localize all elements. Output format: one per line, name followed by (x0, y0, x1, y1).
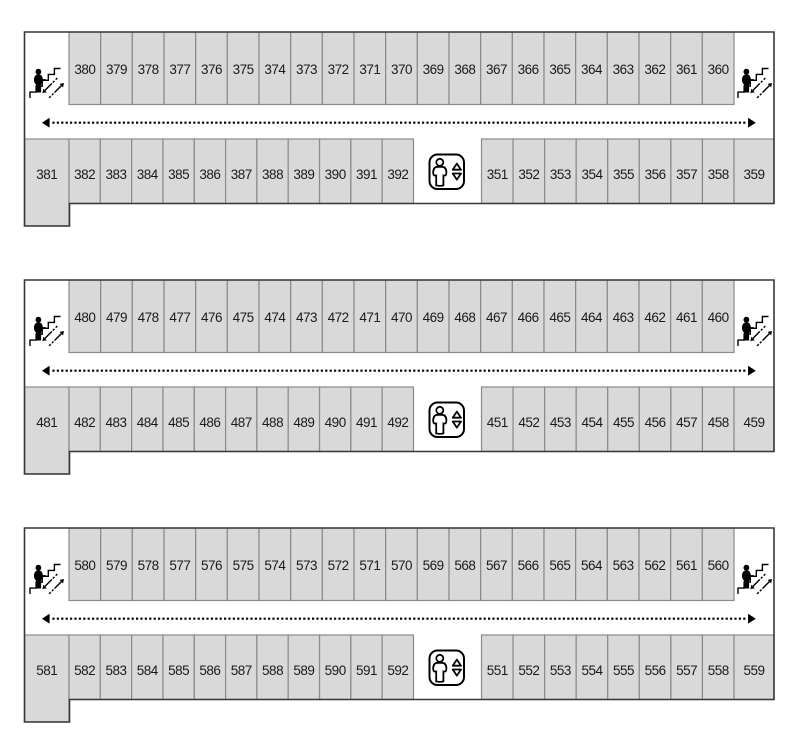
svg-text:379: 379 (106, 62, 127, 77)
svg-text:376: 376 (201, 62, 222, 77)
svg-text:359: 359 (743, 167, 764, 182)
svg-text:555: 555 (613, 663, 634, 678)
svg-text:463: 463 (613, 310, 634, 325)
svg-text:575: 575 (233, 558, 254, 573)
svg-text:478: 478 (138, 310, 159, 325)
svg-text:380: 380 (74, 62, 95, 77)
svg-text:482: 482 (74, 415, 95, 430)
svg-text:491: 491 (356, 415, 377, 430)
svg-text:358: 358 (708, 167, 729, 182)
svg-text:383: 383 (105, 167, 126, 182)
svg-text:566: 566 (518, 558, 539, 573)
svg-text:370: 370 (391, 62, 412, 77)
svg-text:568: 568 (454, 558, 475, 573)
svg-text:570: 570 (391, 558, 412, 573)
svg-text:461: 461 (676, 310, 697, 325)
svg-text:454: 454 (581, 415, 603, 430)
svg-text:560: 560 (708, 558, 729, 573)
svg-text:375: 375 (233, 62, 254, 77)
svg-text:554: 554 (581, 663, 603, 678)
svg-text:591: 591 (356, 663, 377, 678)
svg-text:366: 366 (518, 62, 539, 77)
svg-text:356: 356 (645, 167, 666, 182)
svg-text:587: 587 (231, 663, 252, 678)
svg-text:365: 365 (549, 62, 570, 77)
svg-text:369: 369 (423, 62, 444, 77)
svg-text:460: 460 (708, 310, 729, 325)
svg-text:386: 386 (199, 167, 220, 182)
svg-text:459: 459 (743, 415, 764, 430)
svg-text:473: 473 (296, 310, 317, 325)
svg-text:484: 484 (137, 415, 159, 430)
svg-text:556: 556 (645, 663, 666, 678)
svg-text:577: 577 (169, 558, 190, 573)
svg-text:553: 553 (550, 663, 571, 678)
svg-text:561: 561 (676, 558, 697, 573)
svg-text:584: 584 (137, 663, 159, 678)
svg-text:371: 371 (359, 62, 380, 77)
svg-text:588: 588 (262, 663, 283, 678)
svg-text:456: 456 (645, 415, 666, 430)
svg-text:479: 479 (106, 310, 127, 325)
svg-text:589: 589 (293, 663, 314, 678)
svg-text:578: 578 (138, 558, 159, 573)
svg-text:452: 452 (518, 415, 539, 430)
svg-text:374: 374 (264, 62, 286, 77)
svg-text:481: 481 (36, 415, 57, 430)
svg-text:363: 363 (613, 62, 634, 77)
svg-text:571: 571 (359, 558, 380, 573)
svg-text:586: 586 (199, 663, 220, 678)
svg-text:469: 469 (423, 310, 444, 325)
svg-text:558: 558 (708, 663, 729, 678)
svg-text:480: 480 (74, 310, 95, 325)
svg-text:565: 565 (549, 558, 570, 573)
svg-text:453: 453 (550, 415, 571, 430)
svg-text:382: 382 (74, 167, 95, 182)
svg-text:492: 492 (387, 415, 408, 430)
svg-text:471: 471 (359, 310, 380, 325)
svg-text:367: 367 (486, 62, 507, 77)
svg-text:378: 378 (138, 62, 159, 77)
svg-text:467: 467 (486, 310, 507, 325)
svg-text:388: 388 (262, 167, 283, 182)
svg-text:474: 474 (264, 310, 286, 325)
svg-text:564: 564 (581, 558, 603, 573)
svg-text:373: 373 (296, 62, 317, 77)
svg-text:572: 572 (328, 558, 349, 573)
svg-text:462: 462 (644, 310, 665, 325)
svg-text:464: 464 (581, 310, 603, 325)
svg-text:381: 381 (36, 167, 57, 182)
svg-text:470: 470 (391, 310, 412, 325)
svg-text:573: 573 (296, 558, 317, 573)
svg-text:567: 567 (486, 558, 507, 573)
svg-text:585: 585 (168, 663, 189, 678)
svg-text:576: 576 (201, 558, 222, 573)
svg-text:451: 451 (487, 415, 508, 430)
svg-text:372: 372 (328, 62, 349, 77)
svg-text:551: 551 (487, 663, 508, 678)
svg-text:488: 488 (262, 415, 283, 430)
svg-text:355: 355 (613, 167, 634, 182)
svg-text:574: 574 (264, 558, 286, 573)
svg-text:384: 384 (137, 167, 159, 182)
svg-text:368: 368 (454, 62, 475, 77)
svg-text:457: 457 (676, 415, 697, 430)
svg-text:563: 563 (613, 558, 634, 573)
svg-text:590: 590 (325, 663, 346, 678)
svg-text:475: 475 (233, 310, 254, 325)
svg-text:476: 476 (201, 310, 222, 325)
svg-text:468: 468 (454, 310, 475, 325)
svg-text:351: 351 (487, 167, 508, 182)
svg-text:354: 354 (581, 167, 603, 182)
svg-text:581: 581 (36, 663, 57, 678)
svg-text:579: 579 (106, 558, 127, 573)
svg-text:364: 364 (581, 62, 603, 77)
svg-text:582: 582 (74, 663, 95, 678)
svg-text:353: 353 (550, 167, 571, 182)
svg-text:352: 352 (518, 167, 539, 182)
svg-text:472: 472 (328, 310, 349, 325)
svg-text:465: 465 (549, 310, 570, 325)
svg-text:486: 486 (199, 415, 220, 430)
svg-text:466: 466 (518, 310, 539, 325)
svg-text:389: 389 (293, 167, 314, 182)
svg-text:361: 361 (676, 62, 697, 77)
svg-text:490: 490 (325, 415, 346, 430)
svg-text:483: 483 (105, 415, 126, 430)
svg-text:559: 559 (743, 663, 764, 678)
svg-text:362: 362 (644, 62, 665, 77)
svg-text:552: 552 (518, 663, 539, 678)
svg-text:592: 592 (387, 663, 408, 678)
svg-text:557: 557 (676, 663, 697, 678)
svg-text:385: 385 (168, 167, 189, 182)
svg-text:569: 569 (423, 558, 444, 573)
svg-text:485: 485 (168, 415, 189, 430)
svg-text:477: 477 (169, 310, 190, 325)
svg-text:487: 487 (231, 415, 252, 430)
svg-text:377: 377 (169, 62, 190, 77)
svg-text:390: 390 (325, 167, 346, 182)
svg-text:387: 387 (231, 167, 252, 182)
svg-text:562: 562 (644, 558, 665, 573)
svg-text:455: 455 (613, 415, 634, 430)
svg-text:580: 580 (74, 558, 95, 573)
svg-text:357: 357 (676, 167, 697, 182)
svg-text:392: 392 (387, 167, 408, 182)
svg-text:391: 391 (356, 167, 377, 182)
svg-text:360: 360 (708, 62, 729, 77)
svg-text:458: 458 (708, 415, 729, 430)
svg-text:489: 489 (293, 415, 314, 430)
svg-text:583: 583 (105, 663, 126, 678)
